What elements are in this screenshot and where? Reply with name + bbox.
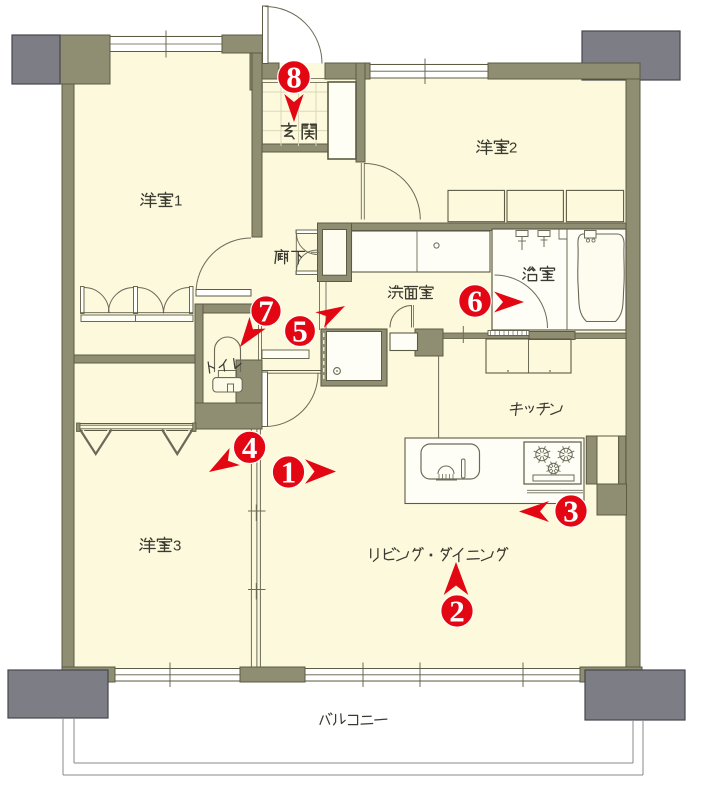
svg-text:1: 1 <box>174 193 182 210</box>
svg-text:3: 3 <box>173 538 181 555</box>
svg-text:2: 2 <box>449 594 465 629</box>
svg-text:3: 3 <box>563 494 579 529</box>
svg-text:2: 2 <box>509 140 517 157</box>
svg-text:1: 1 <box>281 455 297 490</box>
svg-text:4: 4 <box>242 430 258 465</box>
svg-text:7: 7 <box>258 294 274 329</box>
svg-text:6: 6 <box>467 284 483 319</box>
svg-text:5: 5 <box>292 314 308 349</box>
svg-text:8: 8 <box>286 60 302 95</box>
